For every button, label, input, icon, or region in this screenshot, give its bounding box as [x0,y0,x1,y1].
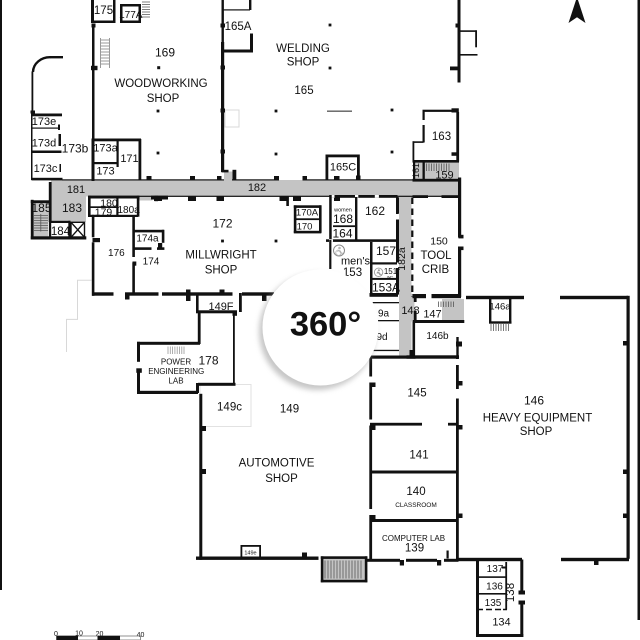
svg-text:162: 162 [365,204,385,218]
svg-text:SHOP: SHOP [520,426,553,438]
svg-text:168: 168 [333,212,353,226]
svg-text:145: 145 [407,388,426,400]
svg-text:173b: 173b [62,142,89,156]
svg-text:WELDING: WELDING [276,43,330,55]
svg-text:146b: 146b [426,331,449,342]
svg-text:170: 170 [297,222,313,233]
svg-text:157: 157 [376,244,396,258]
svg-text:176: 176 [108,248,125,259]
svg-text:138: 138 [505,583,517,602]
svg-text:153A: 153A [372,281,400,295]
svg-text:SHOP: SHOP [265,473,298,485]
svg-text:men's: men's [341,256,370,268]
svg-text:149F: 149F [208,301,233,313]
svg-text:173e: 173e [32,116,56,128]
svg-text:CLASSROOM: CLASSROOM [395,502,437,509]
svg-text:173: 173 [96,166,114,178]
svg-text:173a: 173a [93,143,118,155]
svg-text:CRIB: CRIB [422,264,450,276]
svg-text:165: 165 [294,85,313,97]
svg-text:174a: 174a [136,234,159,245]
svg-text:WOODWORKING: WOODWORKING [114,78,207,90]
svg-text:134: 134 [492,617,510,629]
svg-text:MILLWRIGHT: MILLWRIGHT [185,250,256,262]
svg-text:173c: 173c [34,163,58,175]
svg-text:9a: 9a [378,309,390,320]
svg-text:177A: 177A [119,10,143,21]
svg-text:139: 139 [405,543,424,555]
svg-text:180a: 180a [117,205,140,216]
svg-text:170A: 170A [296,208,319,219]
svg-text:178: 178 [198,354,218,368]
svg-text:WC: WC [387,276,394,280]
svg-text:SHOP: SHOP [205,265,238,277]
svg-text:POWER: POWER [161,357,191,366]
svg-text:172: 172 [212,217,232,231]
svg-text:175: 175 [94,5,113,17]
svg-text:141: 141 [409,450,428,462]
svg-text:148: 148 [401,305,419,317]
svg-text:181: 181 [67,184,85,196]
svg-text:159: 159 [435,170,453,182]
svg-text:137: 137 [487,564,504,575]
svg-text:147: 147 [423,309,441,321]
svg-text:150: 150 [430,236,448,248]
svg-text:173d: 173d [32,138,56,150]
svg-text:182a: 182a [396,247,408,271]
svg-text:183: 183 [62,201,82,215]
svg-text:165C: 165C [330,162,356,174]
svg-text:161: 161 [411,163,421,178]
svg-text:SHOP: SHOP [287,57,320,69]
svg-text:149e: 149e [244,551,256,557]
svg-text:169: 169 [155,46,175,60]
svg-text:136: 136 [486,582,503,593]
svg-text:165A: 165A [225,21,252,33]
svg-text:146: 146 [524,394,544,408]
svg-text:146a: 146a [489,302,511,313]
svg-text:149: 149 [280,404,299,416]
svg-text:135: 135 [485,598,502,609]
svg-text:140: 140 [406,486,425,498]
svg-text:179: 179 [95,207,113,219]
svg-text:171: 171 [120,153,138,165]
svg-text:149c: 149c [217,402,242,414]
svg-text:182: 182 [248,182,266,194]
svg-text:164: 164 [332,227,352,241]
svg-text:SHOP: SHOP [147,93,180,105]
svg-text:AUTOMOTIVE: AUTOMOTIVE [239,458,315,470]
svg-text:LAB: LAB [168,376,183,385]
svg-text:ENGINEERING: ENGINEERING [148,367,204,376]
svg-text:174: 174 [143,257,160,268]
svg-text:163: 163 [432,131,451,143]
svg-text:185: 185 [31,201,51,215]
svg-text:HEAVY EQUIPMENT: HEAVY EQUIPMENT [483,413,593,425]
svg-text:360°: 360° [290,306,361,344]
svg-text:184: 184 [51,226,71,238]
svg-text:TOOL: TOOL [420,250,452,262]
